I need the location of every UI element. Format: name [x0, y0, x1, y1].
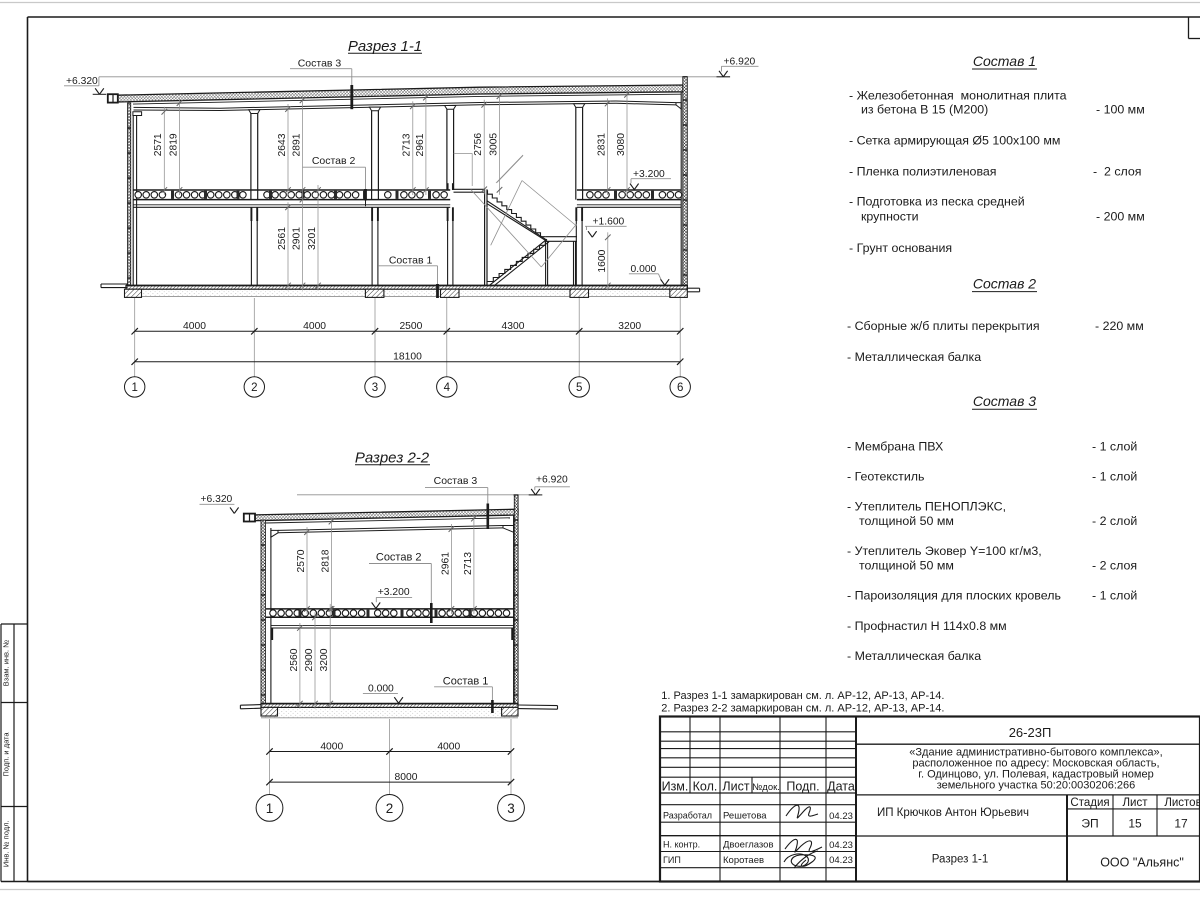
svg-text:2961: 2961	[440, 552, 451, 575]
svg-text:толщиной 50 мм: толщиной 50 мм	[859, 558, 954, 572]
svg-text:3080: 3080	[616, 133, 627, 156]
svg-text:15: 15	[1128, 817, 1142, 831]
svg-text:Состав 3: Состав 3	[434, 475, 478, 487]
svg-text:2900: 2900	[304, 648, 315, 671]
svg-text:6: 6	[677, 382, 683, 394]
svg-text:- Утеплитель ПЕНОПЛЭКС,: - Утеплитель ПЕНОПЛЭКС,	[847, 500, 1006, 514]
svg-text:Состав 1: Состав 1	[973, 53, 1036, 69]
svg-text:3200: 3200	[319, 648, 330, 671]
svg-text:- Металлическая балка: - Металлическая балка	[847, 649, 981, 663]
svg-text:+3.200: +3.200	[633, 169, 665, 180]
svg-text:3201: 3201	[307, 227, 318, 250]
svg-text:- Подготовка из песка средней: - Подготовка из песка средней	[849, 195, 1025, 209]
svg-text:Состав 3: Состав 3	[298, 57, 342, 69]
svg-text:4300: 4300	[502, 321, 525, 332]
svg-text:Состав 2: Состав 2	[312, 155, 356, 167]
svg-text:толщиной 50 мм: толщиной 50 мм	[859, 514, 954, 528]
svg-text:4: 4	[444, 382, 451, 394]
svg-text:ООО "Альянс": ООО "Альянс"	[1100, 856, 1184, 870]
svg-text:- Сетка армирующая Ø5 100х100: - Сетка армирующая Ø5 100х100 мм	[849, 134, 1060, 148]
svg-text:крупности: крупности	[861, 209, 919, 223]
svg-text:ЭП: ЭП	[1081, 817, 1098, 831]
svg-text:3005: 3005	[488, 133, 499, 156]
svg-text:- Пароизоляция для плоских кро: - Пароизоляция для плоских кровель	[847, 589, 1061, 603]
svg-text:+6.320: +6.320	[66, 76, 98, 87]
svg-text:1: 1	[266, 801, 274, 816]
svg-text:№док.: №док.	[752, 782, 780, 793]
svg-text:Подп. и дата: Подп. и дата	[1, 732, 10, 777]
svg-text:2570: 2570	[296, 549, 307, 572]
svg-text:2561: 2561	[277, 227, 288, 250]
svg-text:Лист: Лист	[1123, 797, 1149, 809]
svg-text:Лист: Лист	[722, 780, 749, 794]
svg-text:0.000: 0.000	[368, 684, 394, 695]
svg-text:+1.600: +1.600	[593, 216, 625, 227]
svg-text:4000: 4000	[183, 321, 206, 332]
svg-text:3: 3	[507, 801, 515, 816]
svg-text:4000: 4000	[437, 741, 460, 752]
svg-text:Состав 1: Состав 1	[389, 254, 433, 266]
svg-text:Н. контр.: Н. контр.	[663, 840, 700, 850]
svg-text:ГИП: ГИП	[663, 855, 681, 865]
svg-text:04.23: 04.23	[829, 855, 853, 866]
svg-text:2: 2	[386, 801, 394, 816]
svg-text:2819: 2819	[168, 133, 179, 156]
svg-text:8000: 8000	[395, 772, 418, 783]
svg-text:Решетова: Решетова	[723, 811, 767, 822]
svg-text:- 1 слой: - 1 слой	[1092, 439, 1137, 453]
svg-text:- 2 слой: - 2 слой	[1092, 514, 1137, 528]
svg-text:17: 17	[1174, 817, 1188, 831]
svg-text:земельного участка 50:20:00302: земельного участка 50:20:0030206:266	[937, 780, 1136, 792]
svg-text:04.23: 04.23	[829, 840, 853, 851]
svg-text:04.23: 04.23	[829, 811, 853, 822]
svg-text:Разрез 1-1: Разрез 1-1	[932, 854, 988, 866]
svg-text:2961: 2961	[415, 133, 426, 156]
svg-text:Дата: Дата	[827, 780, 855, 794]
svg-text:3: 3	[372, 382, 378, 394]
svg-text:4000: 4000	[320, 741, 343, 752]
svg-text:2713: 2713	[463, 552, 474, 575]
svg-text:Стадия: Стадия	[1070, 797, 1109, 809]
svg-text:2756: 2756	[473, 133, 484, 156]
svg-text:2. Разрез 2-2 замаркирован см.: 2. Разрез 2-2 замаркирован см. л. АР-12,…	[661, 703, 944, 715]
svg-text:2713: 2713	[402, 133, 413, 156]
svg-text:- Сборные ж/б плиты перекрытия: - Сборные ж/б плиты перекрытия	[847, 319, 1040, 333]
svg-text:2818: 2818	[320, 549, 331, 572]
svg-text:+6.920: +6.920	[724, 57, 756, 68]
svg-text:1: 1	[131, 382, 137, 394]
svg-text:2891: 2891	[291, 133, 302, 156]
svg-text:- 2 слоя: - 2 слоя	[1092, 558, 1137, 572]
svg-text:4000: 4000	[303, 321, 326, 332]
svg-text:Разрез 2-2: Разрез 2-2	[355, 449, 430, 466]
svg-text:2643: 2643	[277, 133, 288, 156]
svg-text:18100: 18100	[393, 351, 422, 362]
svg-text:Состав 2: Состав 2	[376, 552, 422, 564]
svg-text:1. Разрез 1-1 замаркирован см.: 1. Разрез 1-1 замаркирован см. л. АР-12,…	[661, 690, 944, 702]
svg-text:- Геотекстиль: - Геотекстиль	[847, 470, 924, 484]
svg-text:Изм.: Изм.	[662, 780, 689, 794]
svg-text:2901: 2901	[291, 227, 302, 250]
svg-text:Подп.: Подп.	[786, 780, 819, 794]
svg-text:Листов: Листов	[1164, 797, 1200, 809]
svg-text:26-23П: 26-23П	[1009, 725, 1052, 740]
svg-text:Взам. инв. №: Взам. инв. №	[1, 640, 10, 686]
svg-text:Состав 2: Состав 2	[973, 276, 1036, 292]
svg-text:- 1 слой: - 1 слой	[1092, 470, 1137, 484]
svg-text:Разрез 1-1: Разрез 1-1	[348, 38, 422, 55]
svg-text:ИП Крючков Антон Юрьевич: ИП Крючков Антон Юрьевич	[877, 807, 1029, 819]
svg-text:Разработал: Разработал	[663, 811, 712, 821]
svg-text:+3.200: +3.200	[378, 587, 410, 598]
svg-text:2831: 2831	[597, 133, 608, 156]
svg-text:5: 5	[576, 382, 582, 394]
svg-text:2500: 2500	[399, 321, 422, 332]
svg-text:- Мембрана ПВХ: - Мембрана ПВХ	[847, 439, 943, 453]
svg-text:Состав 3: Состав 3	[973, 393, 1036, 409]
svg-text:2571: 2571	[153, 133, 164, 156]
svg-text:2560: 2560	[289, 648, 300, 671]
svg-text:Коротаев: Коротаев	[723, 855, 764, 866]
svg-text:Состав 1: Состав 1	[443, 675, 489, 687]
svg-text:+6.920: +6.920	[536, 475, 568, 486]
svg-text:- 100 мм: - 100 мм	[1096, 102, 1145, 116]
svg-text:- 200 мм: - 200 мм	[1096, 209, 1145, 223]
svg-text:3200: 3200	[618, 321, 641, 332]
svg-text:- Утеплитель Эковер Y=100 кг/м: - Утеплитель Эковер Y=100 кг/м3,	[847, 544, 1042, 558]
svg-text:- Железобетонная монолитная п: - Железобетонная монолитная плита	[849, 89, 1067, 103]
svg-text:- Металлическая балка: - Металлическая балка	[847, 350, 981, 364]
svg-text:2: 2	[251, 382, 257, 394]
svg-text:- Грунт основания: - Грунт основания	[849, 241, 952, 255]
svg-text:- 2 слоя: - 2 слоя	[1093, 165, 1142, 179]
svg-text:- 220 мм: - 220 мм	[1095, 319, 1144, 333]
svg-text:из бетона В 15 (М200): из бетона В 15 (М200)	[861, 102, 988, 116]
svg-text:Кол.: Кол.	[693, 780, 718, 794]
svg-text:+6.320: +6.320	[201, 494, 233, 505]
svg-text:Инв. № подл.: Инв. № подл.	[1, 820, 10, 867]
svg-text:- Профнастил Н 114х0.8 мм: - Профнастил Н 114х0.8 мм	[847, 619, 1007, 633]
svg-text:- Пленка полиэтиленовая: - Пленка полиэтиленовая	[849, 165, 997, 179]
svg-text:1600: 1600	[597, 249, 608, 272]
svg-text:- 1 слой: - 1 слой	[1092, 589, 1137, 603]
svg-text:Двоеглазов: Двоеглазов	[723, 840, 774, 851]
